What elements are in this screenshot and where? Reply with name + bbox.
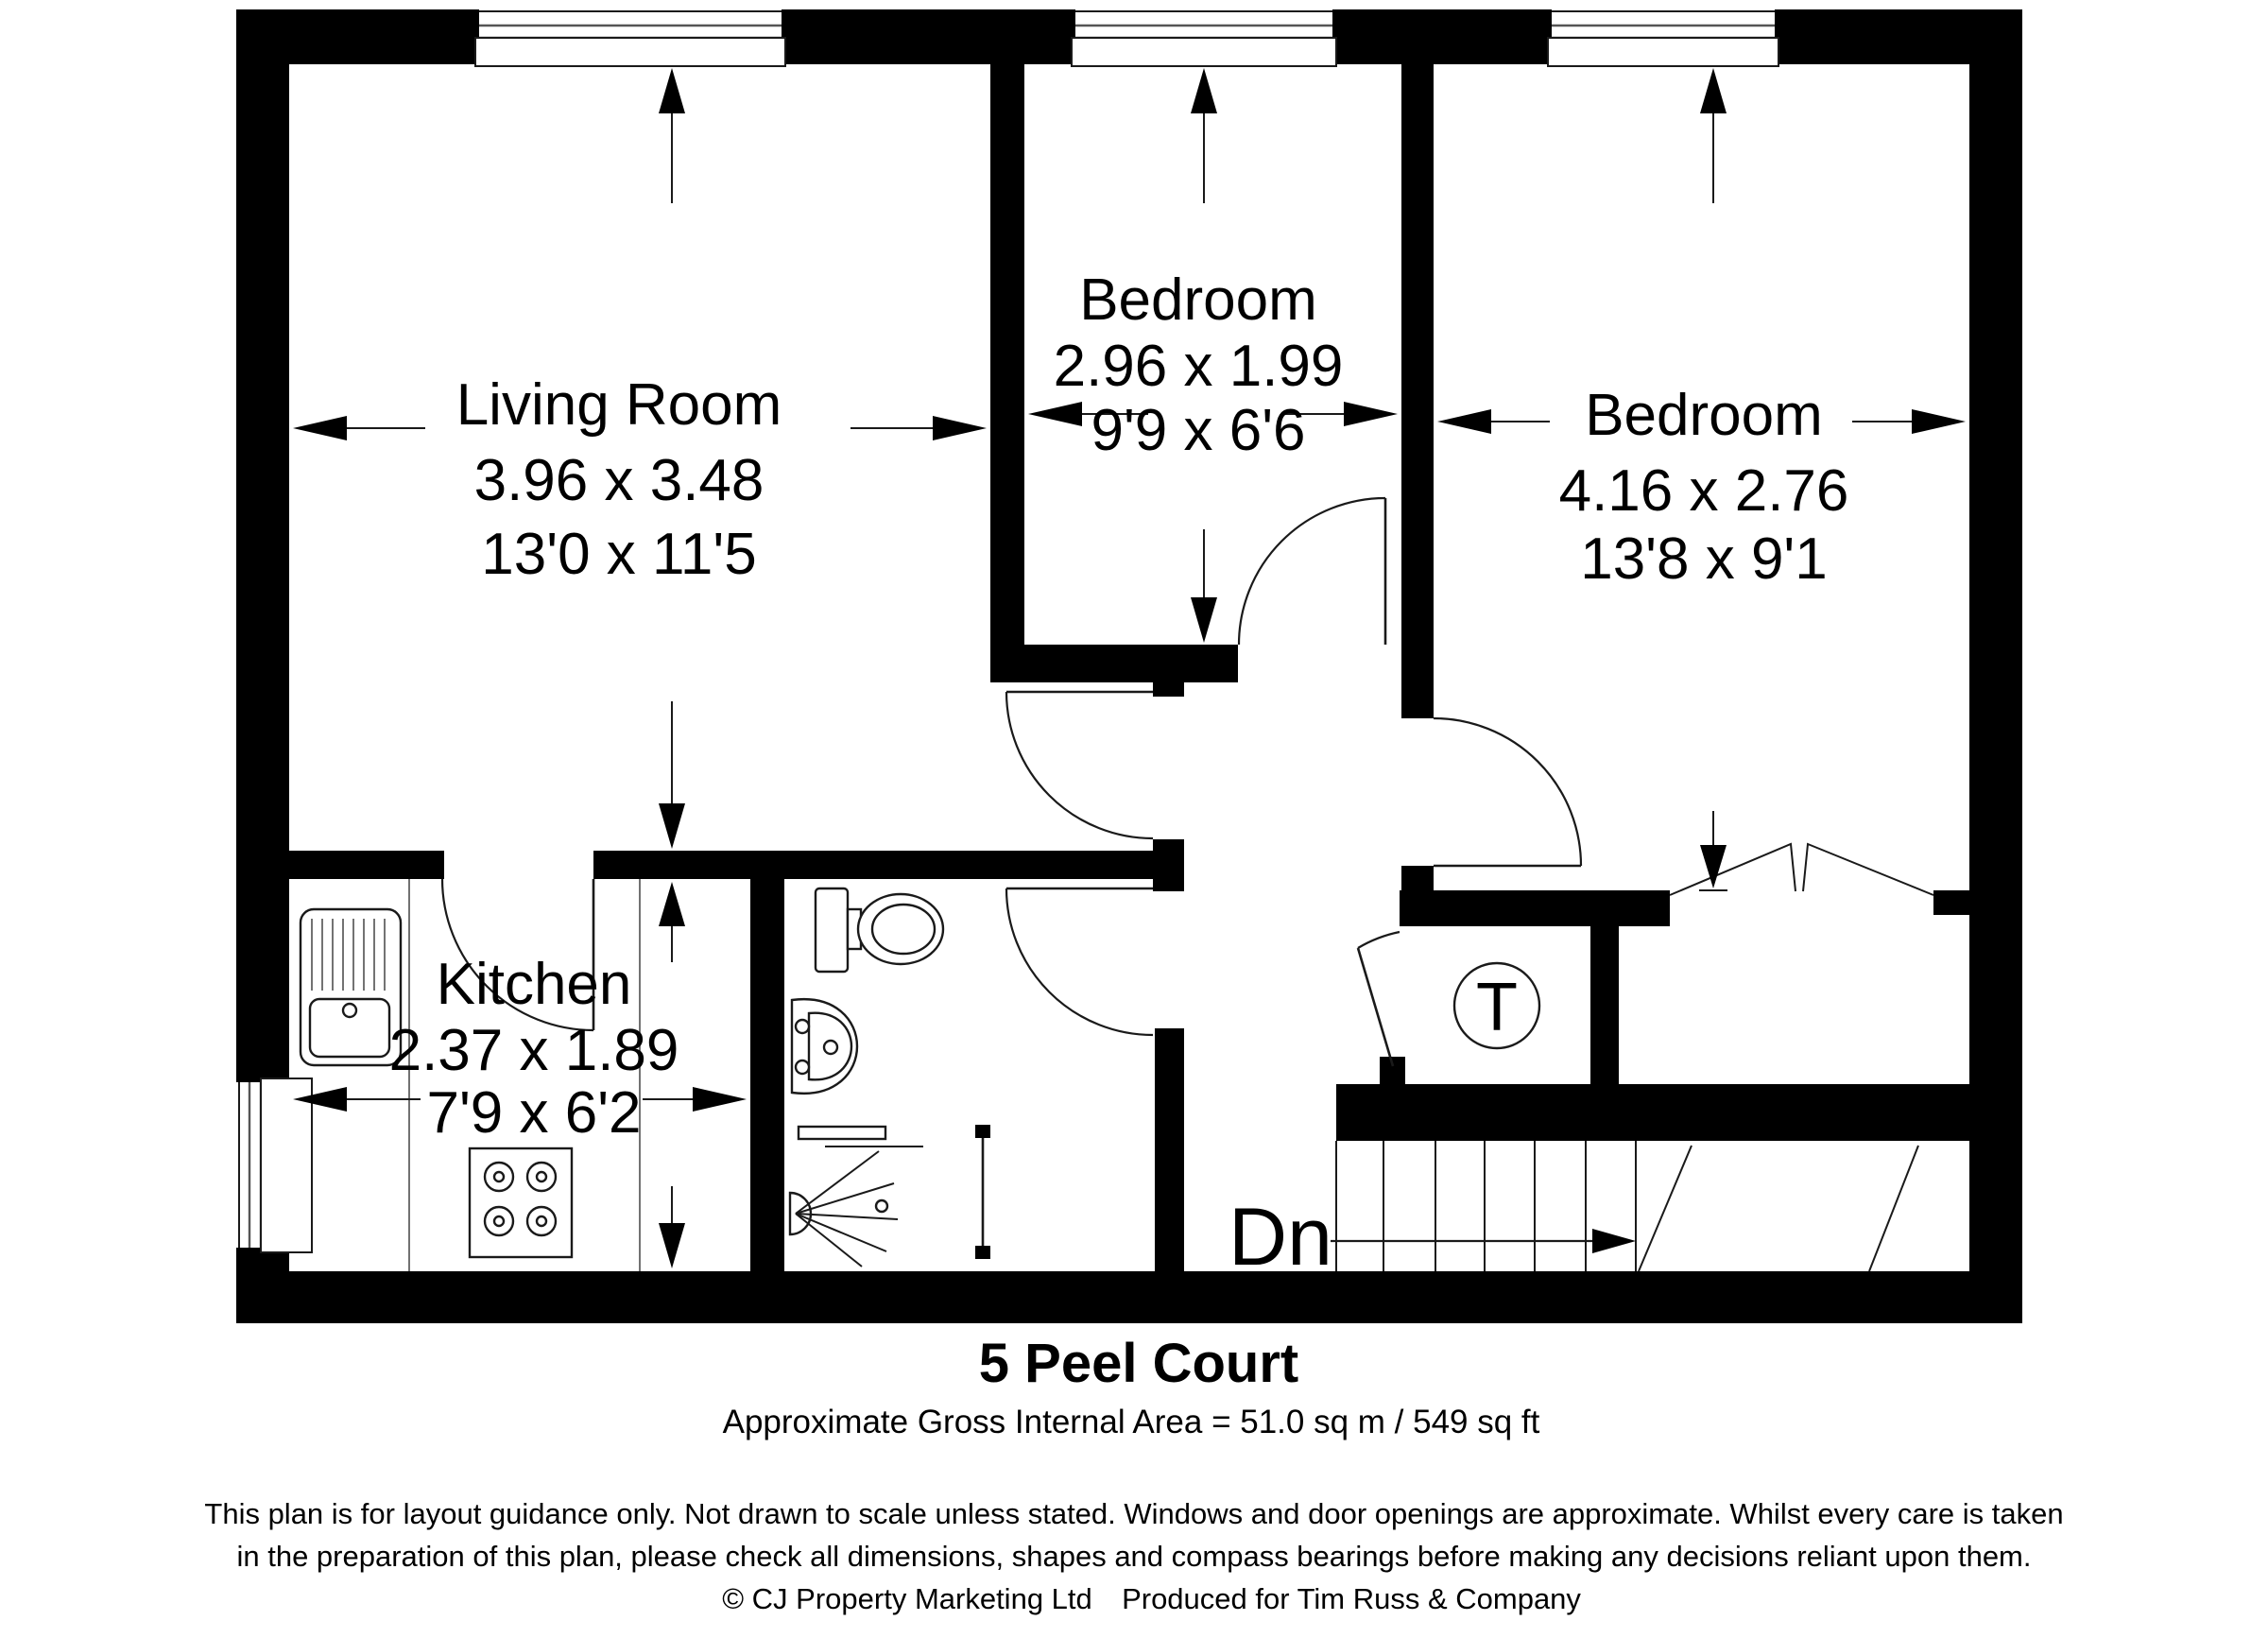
floor-plan-page: Dn T bbox=[0, 0, 2268, 1638]
sink-icon bbox=[301, 909, 401, 1065]
bedroom2-name: Bedroom bbox=[1585, 383, 1823, 448]
window-bedroom1 bbox=[1072, 11, 1336, 66]
room-label-bedroom2: Bedroom 4.16 x 2.76 13'8 x 9'1 bbox=[1559, 383, 1849, 592]
room-label-living: Living Room 3.96 x 3.48 13'0 x 11'5 bbox=[456, 372, 782, 587]
wall-bedroom1-bedroom2 bbox=[1401, 64, 1434, 718]
tank-label: T bbox=[1476, 970, 1518, 1045]
wall-bedroom2-bottom bbox=[1400, 890, 1670, 926]
wall-living-bedroom1 bbox=[990, 64, 1024, 682]
bedroom2-size-metric: 4.16 x 2.76 bbox=[1559, 458, 1849, 524]
wall-bedroom1-bottom bbox=[990, 645, 1238, 682]
kitchen-name: Kitchen bbox=[437, 952, 632, 1017]
kitchen-size-metric: 2.37 x 1.89 bbox=[389, 1018, 679, 1083]
room-label-kitchen: Kitchen 2.37 x 1.89 7'9 x 6'2 bbox=[389, 952, 679, 1146]
basin-icon bbox=[792, 999, 857, 1094]
wall-kitchen-bathroom bbox=[750, 851, 784, 1271]
wall-cupboard-right bbox=[1590, 926, 1619, 1084]
tank-cupboard: T bbox=[1454, 963, 1539, 1048]
bedroom2-size-imperial: 13'8 x 9'1 bbox=[1580, 526, 1828, 592]
hob-icon bbox=[470, 1148, 572, 1257]
toilet-icon bbox=[816, 888, 943, 972]
room-label-bedroom1: Bedroom 2.96 x 1.99 9'9 x 6'6 bbox=[1054, 267, 1344, 463]
kitchen-size-imperial: 7'9 x 6'2 bbox=[426, 1080, 641, 1146]
window-living-room bbox=[475, 11, 785, 66]
wall-living-kitchen bbox=[289, 851, 444, 879]
area-subtitle: Approximate Gross Internal Area = 51.0 s… bbox=[723, 1404, 1540, 1440]
window-kitchen bbox=[239, 1078, 312, 1252]
door-bedroom1 bbox=[1239, 498, 1385, 645]
bedroom1-size-imperial: 9'9 x 6'6 bbox=[1091, 398, 1305, 463]
living-room-size-imperial: 13'0 x 11'5 bbox=[481, 522, 756, 587]
wall-hall-stub bbox=[1153, 839, 1184, 891]
wall-above-stairs bbox=[1336, 1084, 2022, 1141]
disclaimer-line1: This plan is for layout guidance only. N… bbox=[204, 1497, 2063, 1530]
door-bathroom bbox=[1006, 888, 1153, 1035]
living-room-name: Living Room bbox=[456, 372, 782, 438]
door-living-room bbox=[1006, 692, 1153, 838]
bedroom1-size-metric: 2.96 x 1.99 bbox=[1054, 334, 1344, 399]
footer: 5 Peel Court Approximate Gross Internal … bbox=[204, 1333, 2063, 1615]
copyright: © CJ Property Marketing Ltd bbox=[722, 1582, 1092, 1615]
stairs-down-arrow bbox=[1331, 1229, 1636, 1253]
door-cupboard-ajar bbox=[1358, 932, 1400, 1066]
page-title: 5 Peel Court bbox=[979, 1333, 1298, 1394]
stairs: Dn bbox=[1228, 1141, 1918, 1283]
wall-bathroom-right bbox=[1155, 1028, 1184, 1271]
door-bedroom2 bbox=[1434, 718, 1581, 866]
window-bedroom2 bbox=[1548, 11, 1778, 66]
shelf-icon bbox=[799, 1127, 923, 1147]
stairs-down-label: Dn bbox=[1228, 1192, 1332, 1283]
floor-plan-drawing: Dn T bbox=[0, 0, 2268, 1638]
stair-winder-line bbox=[1639, 1146, 1692, 1271]
living-room-size-metric: 3.96 x 3.48 bbox=[474, 448, 765, 513]
disclaimer-line2: in the preparation of this plan, please … bbox=[236, 1540, 2031, 1573]
produced-for: Produced for Tim Russ & Company bbox=[1122, 1582, 1581, 1615]
bedroom1-name: Bedroom bbox=[1079, 267, 1317, 333]
stair-winder-line bbox=[1869, 1146, 1918, 1271]
